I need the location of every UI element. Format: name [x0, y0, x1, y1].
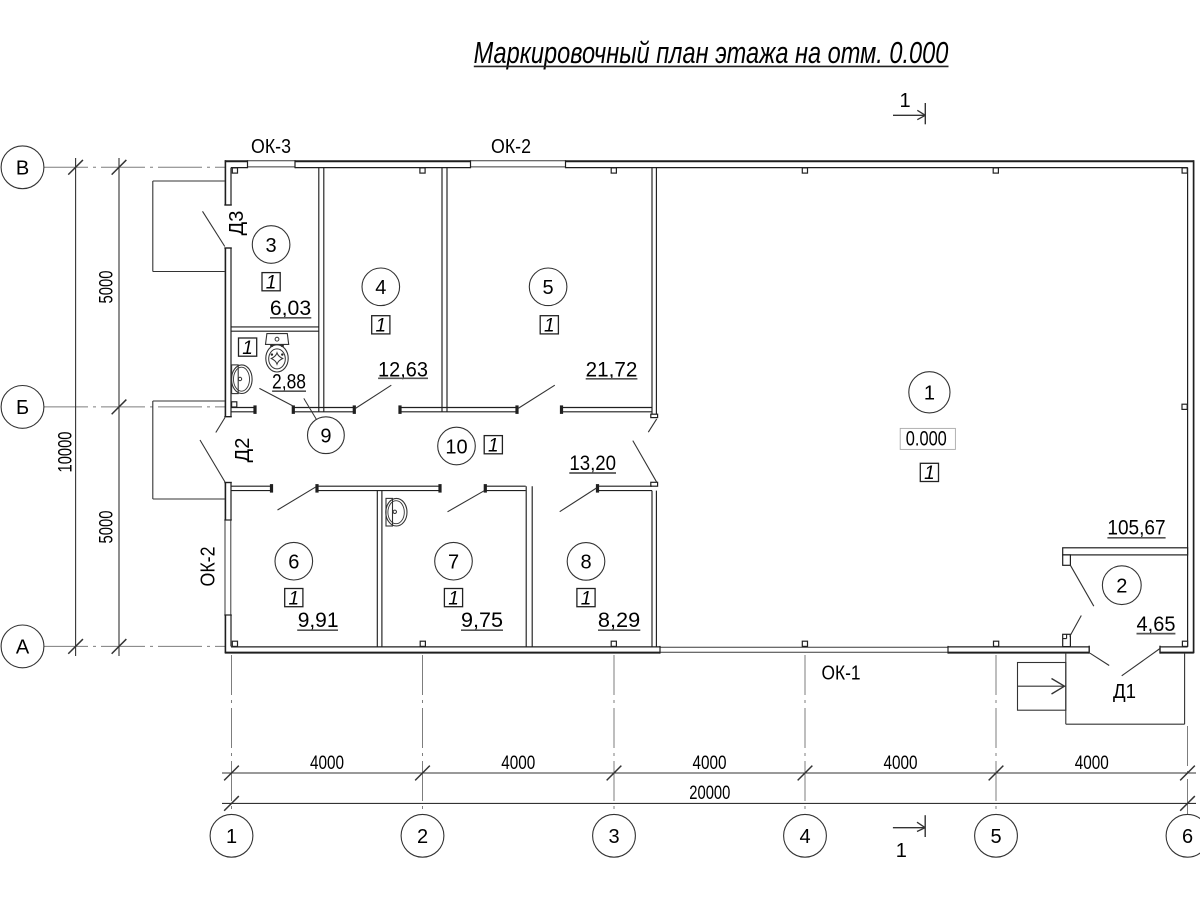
svg-text:2: 2 [417, 826, 428, 848]
svg-text:4000: 4000 [884, 753, 918, 774]
svg-text:1: 1 [581, 588, 592, 609]
svg-text:6,03: 6,03 [270, 297, 311, 320]
svg-text:В: В [16, 158, 29, 180]
svg-text:7: 7 [448, 552, 459, 574]
svg-text:1: 1 [226, 826, 237, 848]
svg-text:4: 4 [375, 277, 386, 299]
svg-text:1: 1 [544, 316, 555, 337]
svg-text:1: 1 [899, 90, 910, 112]
svg-text:4000: 4000 [501, 753, 535, 774]
svg-text:8: 8 [580, 552, 591, 574]
svg-text:4000: 4000 [1075, 753, 1109, 774]
svg-text:5: 5 [990, 826, 1001, 848]
svg-text:9,91: 9,91 [298, 609, 339, 632]
svg-text:5: 5 [543, 277, 554, 299]
svg-text:ОК-2: ОК-2 [198, 547, 220, 587]
svg-text:1: 1 [376, 316, 387, 337]
svg-text:6: 6 [288, 552, 299, 574]
svg-text:9: 9 [320, 426, 331, 448]
svg-text:1: 1 [488, 436, 499, 457]
svg-text:4000: 4000 [693, 753, 727, 774]
svg-text:20000: 20000 [689, 783, 730, 804]
svg-text:4: 4 [799, 826, 810, 848]
svg-text:ОК-3: ОК-3 [251, 136, 291, 158]
svg-text:1: 1 [924, 463, 935, 484]
svg-text:Б: Б [16, 397, 29, 419]
svg-text:2,88: 2,88 [272, 370, 306, 393]
svg-text:105,67: 105,67 [1107, 517, 1165, 540]
svg-text:1: 1 [266, 273, 277, 294]
svg-text:3: 3 [266, 235, 277, 257]
svg-text:4,65: 4,65 [1137, 613, 1176, 636]
svg-text:2: 2 [1116, 576, 1127, 598]
svg-text:Маркировочный план этажа на от: Маркировочный план этажа на отм. 0.000 [474, 36, 949, 70]
svg-text:1: 1 [896, 840, 907, 862]
svg-text:0.000: 0.000 [906, 428, 947, 451]
svg-text:А: А [16, 637, 30, 659]
svg-text:10: 10 [445, 436, 467, 458]
svg-text:1: 1 [242, 338, 253, 359]
svg-text:5000: 5000 [97, 511, 118, 544]
svg-text:1: 1 [924, 383, 935, 405]
svg-text:1: 1 [289, 588, 300, 609]
svg-text:9,75: 9,75 [461, 609, 503, 632]
svg-text:6: 6 [1182, 826, 1193, 848]
svg-text:Д2: Д2 [232, 438, 254, 463]
svg-text:ОК-2: ОК-2 [491, 136, 531, 158]
svg-text:13,20: 13,20 [569, 452, 616, 475]
svg-text:1: 1 [448, 588, 459, 609]
svg-text:ОК-1: ОК-1 [822, 663, 861, 685]
svg-text:8,29: 8,29 [598, 609, 640, 632]
svg-text:5000: 5000 [97, 271, 118, 304]
svg-text:3: 3 [608, 826, 619, 848]
svg-text:Д1: Д1 [1113, 681, 1136, 703]
svg-text:4000: 4000 [310, 753, 344, 774]
svg-text:Д3: Д3 [226, 211, 248, 236]
svg-text:10000: 10000 [56, 432, 77, 473]
